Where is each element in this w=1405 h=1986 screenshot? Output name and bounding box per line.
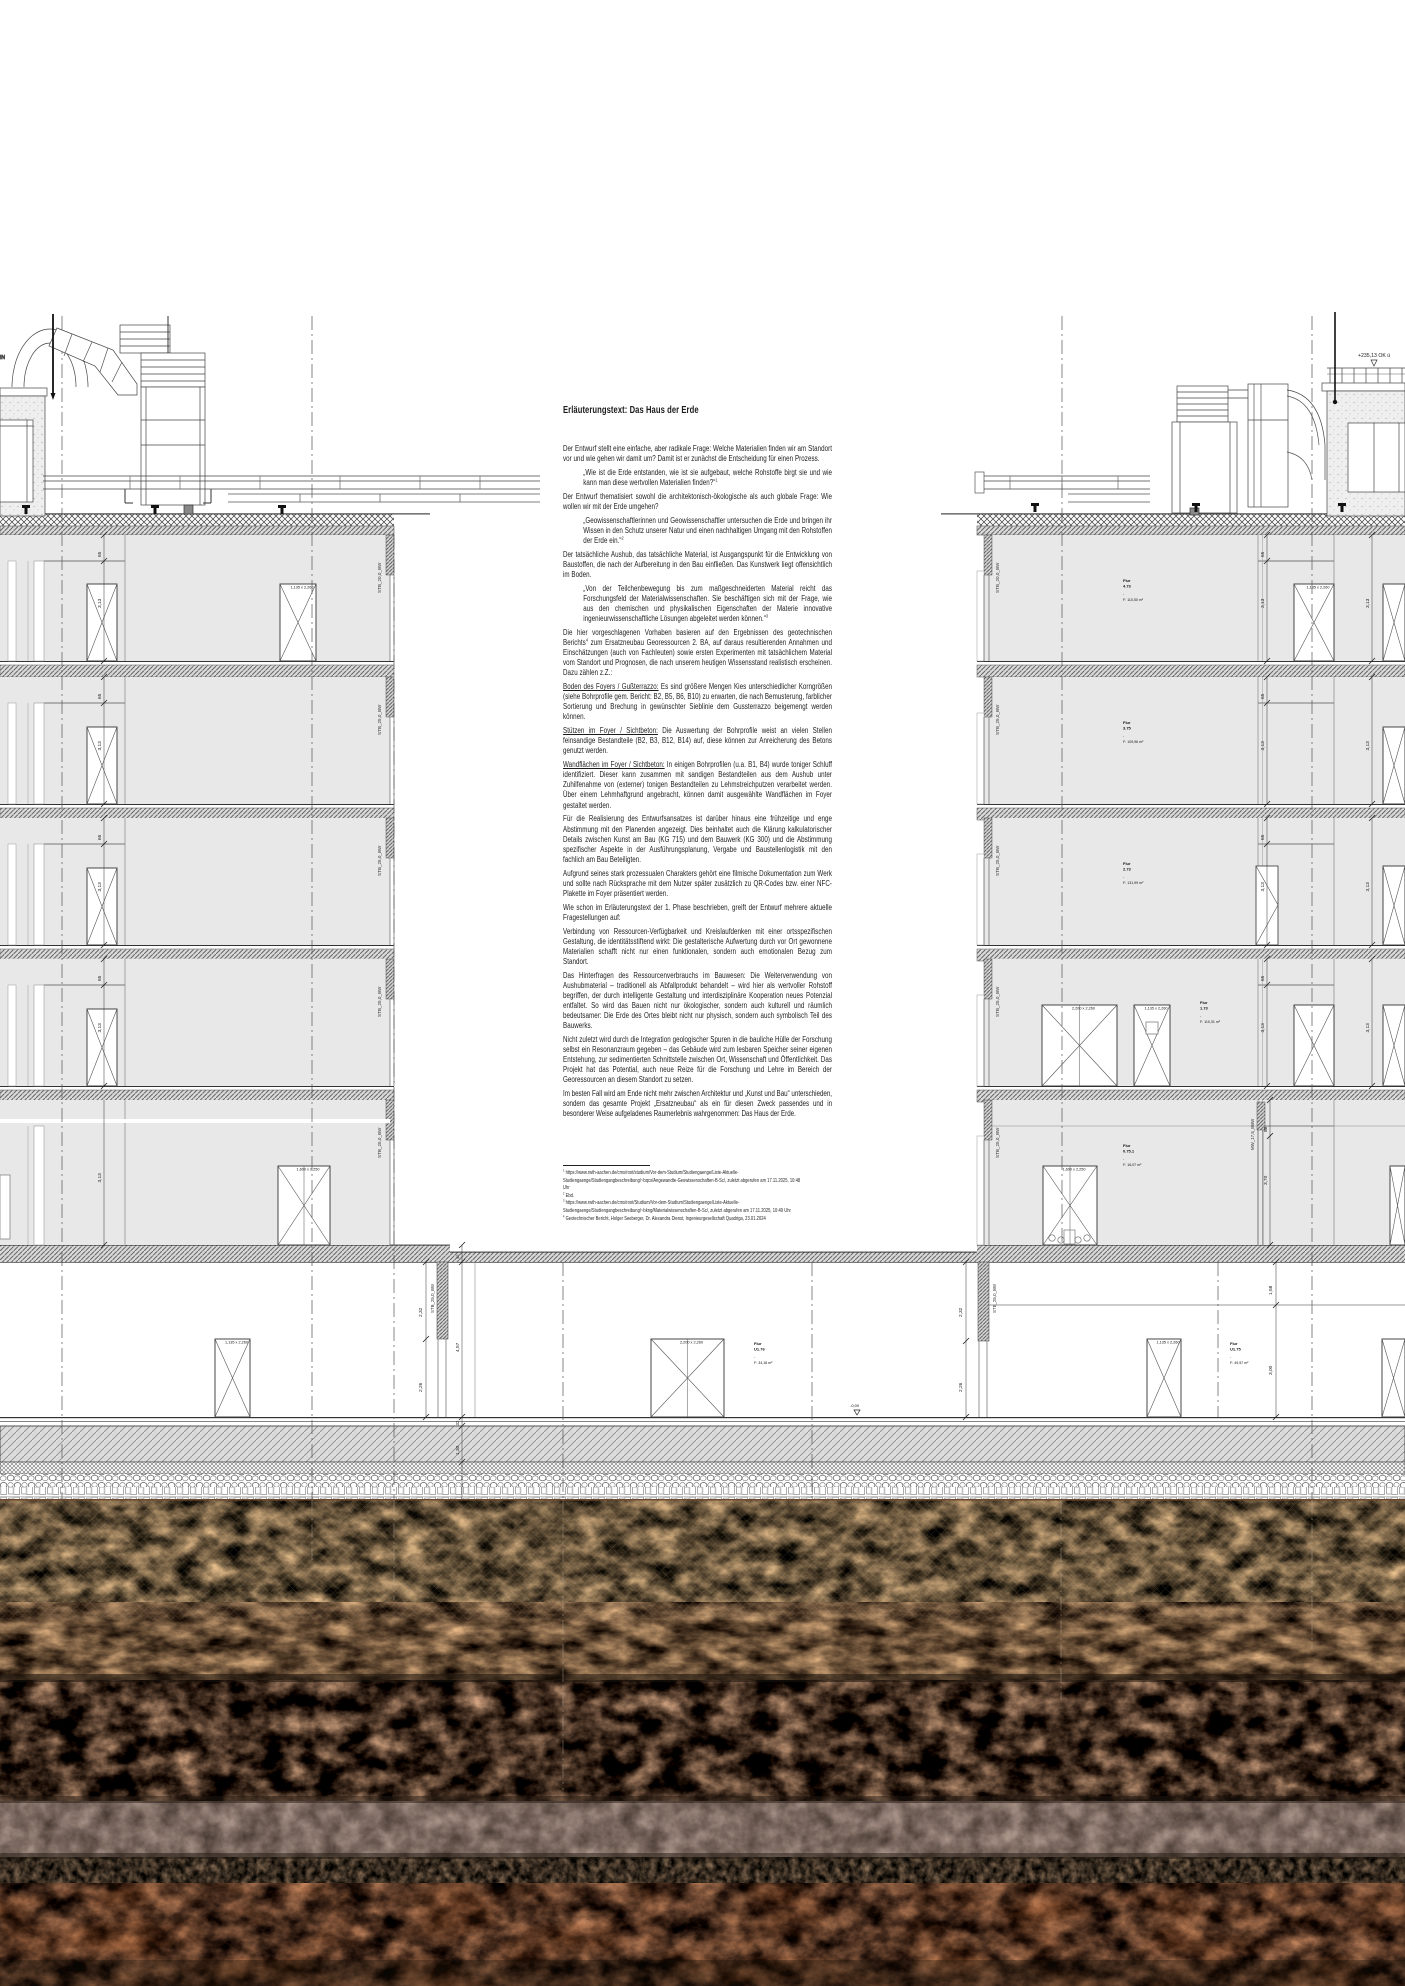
svg-text:3,13: 3,13 (97, 741, 103, 751)
svg-text:U1.76: U1.76 (754, 1347, 765, 1352)
svg-text:2,26: 2,26 (958, 1382, 964, 1392)
svg-text:Flur: Flur (1230, 1341, 1238, 1346)
svg-text:3,13: 3,13 (1365, 598, 1371, 608)
svg-text:65: 65 (1260, 834, 1266, 840)
svg-text:1,135 x 2,260: 1,135 x 2,260 (290, 586, 313, 590)
svg-text:0.75.1: 0.75.1 (1123, 1149, 1135, 1154)
svg-text:-0,00: -0,00 (850, 1403, 860, 1408)
svg-text:1,30: 1,30 (455, 1445, 461, 1455)
svg-text:IN: IN (0, 355, 5, 361)
svg-text:2,200 x 2,260: 2,200 x 2,260 (1072, 1007, 1095, 1011)
svg-text:1,58: 1,58 (1268, 1285, 1274, 1295)
svg-text:STB_20,0_BW: STB_20,0_BW (995, 562, 1000, 593)
svg-text:Flur: Flur (1123, 1143, 1131, 1148)
svg-text:2.73: 2.73 (1123, 867, 1132, 872)
svg-text:3,13: 3,13 (1260, 882, 1266, 892)
svg-text:STB_25,0_BW: STB_25,0_BW (377, 1127, 382, 1158)
svg-text:65: 65 (97, 834, 103, 840)
svg-text:3,13: 3,13 (97, 1023, 103, 1033)
svg-text:F: 109,96 m²: F: 109,96 m² (1123, 740, 1144, 744)
svg-text:2,200 x 2,260: 2,200 x 2,260 (680, 1341, 703, 1345)
svg-text:Flur: Flur (1123, 861, 1131, 866)
svg-text:STB_25,0_BW: STB_25,0_BW (377, 986, 382, 1017)
svg-text:STB_25,0_BW: STB_25,0_BW (430, 1283, 435, 1313)
svg-text:65: 65 (1260, 693, 1266, 699)
svg-text:U1.75: U1.75 (1230, 1347, 1241, 1352)
svg-text:F: 110,31 m²: F: 110,31 m² (1200, 1020, 1221, 1024)
svg-text:Flur: Flur (754, 1341, 762, 1346)
svg-text:1,135 x 2,260: 1,135 x 2,260 (225, 1341, 248, 1345)
svg-text:3.75: 3.75 (1123, 726, 1132, 731)
svg-text:STB_25,0_BW: STB_25,0_BW (377, 704, 382, 735)
svg-text:MW_17,5_BBW: MW_17,5_BBW (1250, 1118, 1255, 1150)
svg-text:2,32: 2,32 (958, 1307, 964, 1317)
svg-text:2,32: 2,32 (418, 1307, 424, 1317)
svg-text:4,57: 4,57 (455, 1342, 461, 1352)
svg-text:STB_25,0_BW: STB_25,0_BW (995, 704, 1000, 735)
svg-text:4.73: 4.73 (1123, 584, 1132, 589)
svg-text:65: 65 (97, 551, 103, 557)
svg-text:3,13: 3,13 (1365, 741, 1371, 751)
svg-text:2,26: 2,26 (418, 1382, 424, 1392)
svg-text:F: 131,99 m²: F: 131,99 m² (1123, 881, 1144, 885)
svg-text:STB_20,0_BW: STB_20,0_BW (377, 562, 382, 593)
svg-text:1,135 x 2,260: 1,135 x 2,260 (1156, 1341, 1179, 1345)
svg-text:1,135 x 2,260: 1,135 x 2,260 (1306, 586, 1329, 590)
svg-text:42: 42 (455, 1254, 460, 1259)
svg-text:Flur: Flur (1123, 720, 1131, 725)
svg-text:STB_25,0_BW: STB_25,0_BW (995, 845, 1000, 876)
svg-text:3,13: 3,13 (97, 598, 103, 608)
svg-text:STB_25,0_BW: STB_25,0_BW (995, 1127, 1000, 1158)
svg-text:88: 88 (1263, 1126, 1269, 1132)
svg-text:F: 16,07 m²: F: 16,07 m² (1123, 1163, 1142, 1167)
svg-text:F: 49,57 m²: F: 49,57 m² (1230, 1361, 1249, 1365)
svg-text:1,600 x 2,250: 1,600 x 2,250 (1062, 1168, 1085, 1172)
svg-text:3,13: 3,13 (1260, 598, 1266, 608)
svg-text:65: 65 (1260, 975, 1266, 981)
svg-text:1.73: 1.73 (1200, 1006, 1209, 1011)
svg-text:3,13: 3,13 (1260, 1023, 1266, 1033)
svg-text:3,13: 3,13 (1260, 741, 1266, 751)
svg-text:Flur: Flur (1200, 1000, 1208, 1005)
svg-text:32: 32 (455, 1420, 460, 1425)
svg-text:1,600 x 2,250: 1,600 x 2,250 (296, 1168, 319, 1172)
svg-text:F: 34,18 m²: F: 34,18 m² (754, 1361, 773, 1365)
svg-text:65: 65 (1260, 551, 1266, 557)
svg-text:STB_25,0_BW: STB_25,0_BW (992, 1283, 997, 1313)
svg-text:STB_25,0_BW: STB_25,0_BW (377, 845, 382, 876)
svg-text:65: 65 (97, 975, 103, 981)
svg-text:+235,13 OK ü: +235,13 OK ü (1358, 353, 1390, 359)
svg-text:Flur: Flur (1123, 578, 1131, 583)
svg-text:3,13: 3,13 (97, 1173, 103, 1183)
svg-text:F: 110,50 m²: F: 110,50 m² (1123, 598, 1144, 602)
svg-text:3,13: 3,13 (1365, 1023, 1371, 1033)
svg-text:65: 65 (97, 693, 103, 699)
svg-text:3,13: 3,13 (1365, 882, 1371, 892)
svg-text:1,135 x 2,260: 1,135 x 2,260 (1144, 1007, 1167, 1011)
svg-text:3,00: 3,00 (1268, 1365, 1274, 1375)
svg-text:STB_25,0_BW: STB_25,0_BW (995, 986, 1000, 1017)
svg-text:3,13: 3,13 (97, 882, 103, 892)
svg-text:3,70: 3,70 (1263, 1175, 1269, 1185)
